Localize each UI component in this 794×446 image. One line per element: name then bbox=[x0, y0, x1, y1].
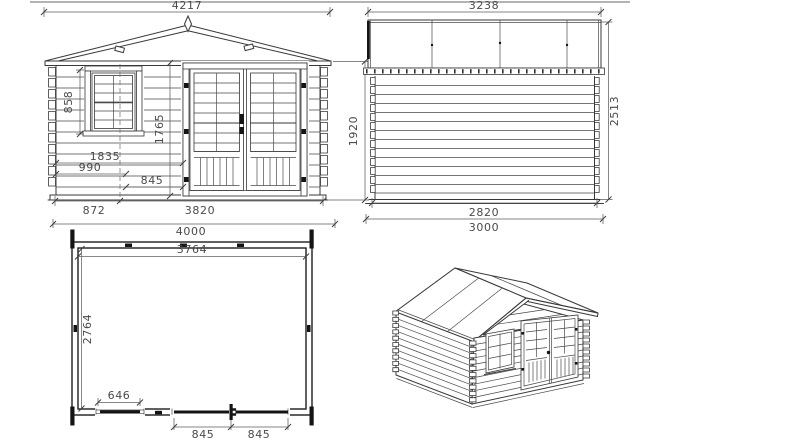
dim-side-overall-height: 2513 bbox=[608, 96, 621, 126]
dim-door-height: 1765 bbox=[153, 114, 166, 144]
window-sill bbox=[83, 131, 144, 136]
dim-wall-width: 3820 bbox=[185, 204, 215, 217]
perspective-view bbox=[393, 268, 598, 408]
side-roof-edge bbox=[367, 21, 370, 59]
dim-wall-height: 1920 bbox=[347, 116, 360, 146]
plan-corner-post bbox=[70, 230, 74, 249]
dim-front-overall-width: 4217 bbox=[172, 0, 202, 12]
front-elevation-view: 4217 858 1765 1835 990 845 872 3820 4000 bbox=[41, 0, 369, 238]
dim-window-left-offset: 990 bbox=[79, 161, 102, 174]
drawing-canvas: 4217 858 1765 1835 990 845 872 3820 4000 bbox=[0, 0, 794, 446]
door-handle-3d bbox=[547, 351, 550, 354]
front-roof bbox=[45, 16, 331, 66]
technical-drawing-sheet: 4217 858 1765 1835 990 845 872 3820 4000 bbox=[0, 0, 794, 446]
log-ends-left bbox=[49, 68, 56, 187]
plan-window-opening bbox=[95, 408, 145, 417]
floor-plan-view: 3764 2764 646 845 845 bbox=[70, 230, 313, 442]
dim-plan-door-right: 845 bbox=[248, 428, 271, 441]
door-hinge bbox=[184, 83, 189, 88]
dim-window-height: 858 bbox=[62, 91, 75, 114]
front-window bbox=[83, 66, 144, 136]
roof-bracket-left bbox=[115, 46, 125, 53]
dim-plan-inner-width: 3764 bbox=[177, 243, 207, 256]
dim-plan-inner-depth: 2764 bbox=[81, 314, 94, 344]
dim-side-wall-depth: 2820 bbox=[469, 206, 499, 219]
dim-side-base-depth: 3000 bbox=[469, 221, 499, 234]
dim-side-overall-depth: 3238 bbox=[469, 0, 499, 12]
side-roof bbox=[364, 20, 605, 75]
dim-window-center-offset: 872 bbox=[83, 204, 106, 217]
roof-bracket-right bbox=[244, 44, 254, 51]
dim-plan-window-opening: 646 bbox=[108, 389, 131, 402]
side-wall-logs bbox=[366, 77, 604, 204]
plan-door-leaf-left bbox=[174, 411, 229, 414]
log-ends-right bbox=[321, 68, 328, 187]
door-handle bbox=[240, 114, 245, 124]
window-head-trim bbox=[85, 66, 142, 71]
plan-door-leaf-right bbox=[236, 411, 289, 414]
plan-inner-wall bbox=[78, 248, 306, 409]
corner-logs-front-right bbox=[583, 320, 590, 378]
side-elevation-view: 3238 2513 2820 3000 bbox=[363, 0, 621, 234]
roof-finial bbox=[185, 16, 192, 32]
side-log-ends-right bbox=[595, 78, 600, 193]
dim-overall-base-width: 4000 bbox=[176, 225, 206, 238]
dim-door-leaf-width: 845 bbox=[141, 174, 164, 187]
side-eave-board bbox=[364, 68, 605, 75]
front-doors bbox=[181, 61, 309, 197]
doors-3d bbox=[521, 315, 578, 390]
window-3d bbox=[485, 329, 516, 375]
dim-plan-door-left: 845 bbox=[192, 428, 215, 441]
